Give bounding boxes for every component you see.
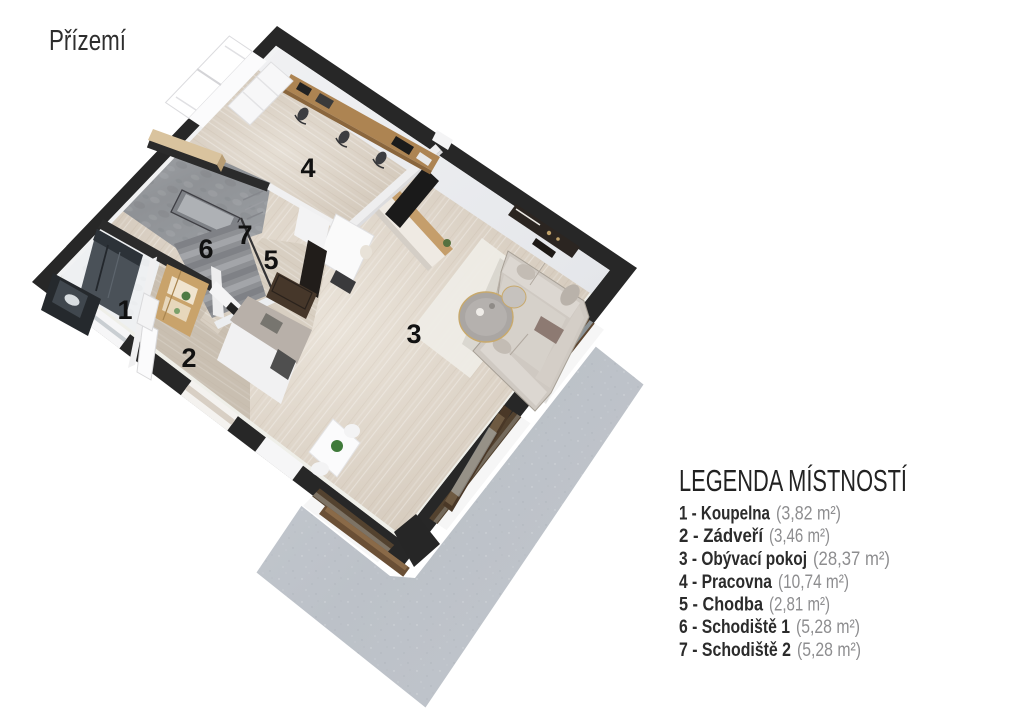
svg-text:(5,28 m²): (5,28 m²)	[796, 617, 860, 638]
svg-text:(5,28 m²): (5,28 m²)	[797, 640, 861, 661]
svg-text:7 - Schodiště 2: 7 - Schodiště 2	[679, 640, 791, 661]
svg-text:5 - Chodba: 5 - Chodba	[679, 595, 763, 616]
svg-text:LEGENDA MÍSTNOSTÍ: LEGENDA MÍSTNOSTÍ	[679, 463, 907, 498]
svg-text:5: 5	[263, 245, 278, 275]
svg-text:Přízemí: Přízemí	[49, 25, 126, 57]
svg-text:(10,74 m²): (10,74 m²)	[778, 572, 849, 593]
svg-text:(3,46 m²): (3,46 m²)	[769, 526, 830, 547]
svg-text:6: 6	[198, 234, 213, 264]
svg-text:1 - Koupelna: 1 - Koupelna	[679, 504, 770, 525]
svg-text:2: 2	[181, 343, 196, 373]
svg-text:(28,37 m²): (28,37 m²)	[813, 549, 890, 570]
svg-text:(3,82 m²): (3,82 m²)	[776, 504, 841, 525]
svg-text:6 - Schodiště 1: 6 - Schodiště 1	[679, 617, 790, 638]
svg-text:3: 3	[406, 319, 421, 349]
svg-text:2 - Zádveří: 2 - Zádveří	[679, 526, 764, 547]
svg-text:(2,81 m²): (2,81 m²)	[769, 595, 830, 616]
svg-text:3 - Obývací pokoj: 3 - Obývací pokoj	[679, 549, 807, 570]
svg-text:1: 1	[117, 295, 132, 325]
svg-text:4: 4	[300, 153, 315, 183]
svg-text:7: 7	[237, 220, 252, 250]
svg-text:4 - Pracovna: 4 - Pracovna	[679, 572, 772, 593]
